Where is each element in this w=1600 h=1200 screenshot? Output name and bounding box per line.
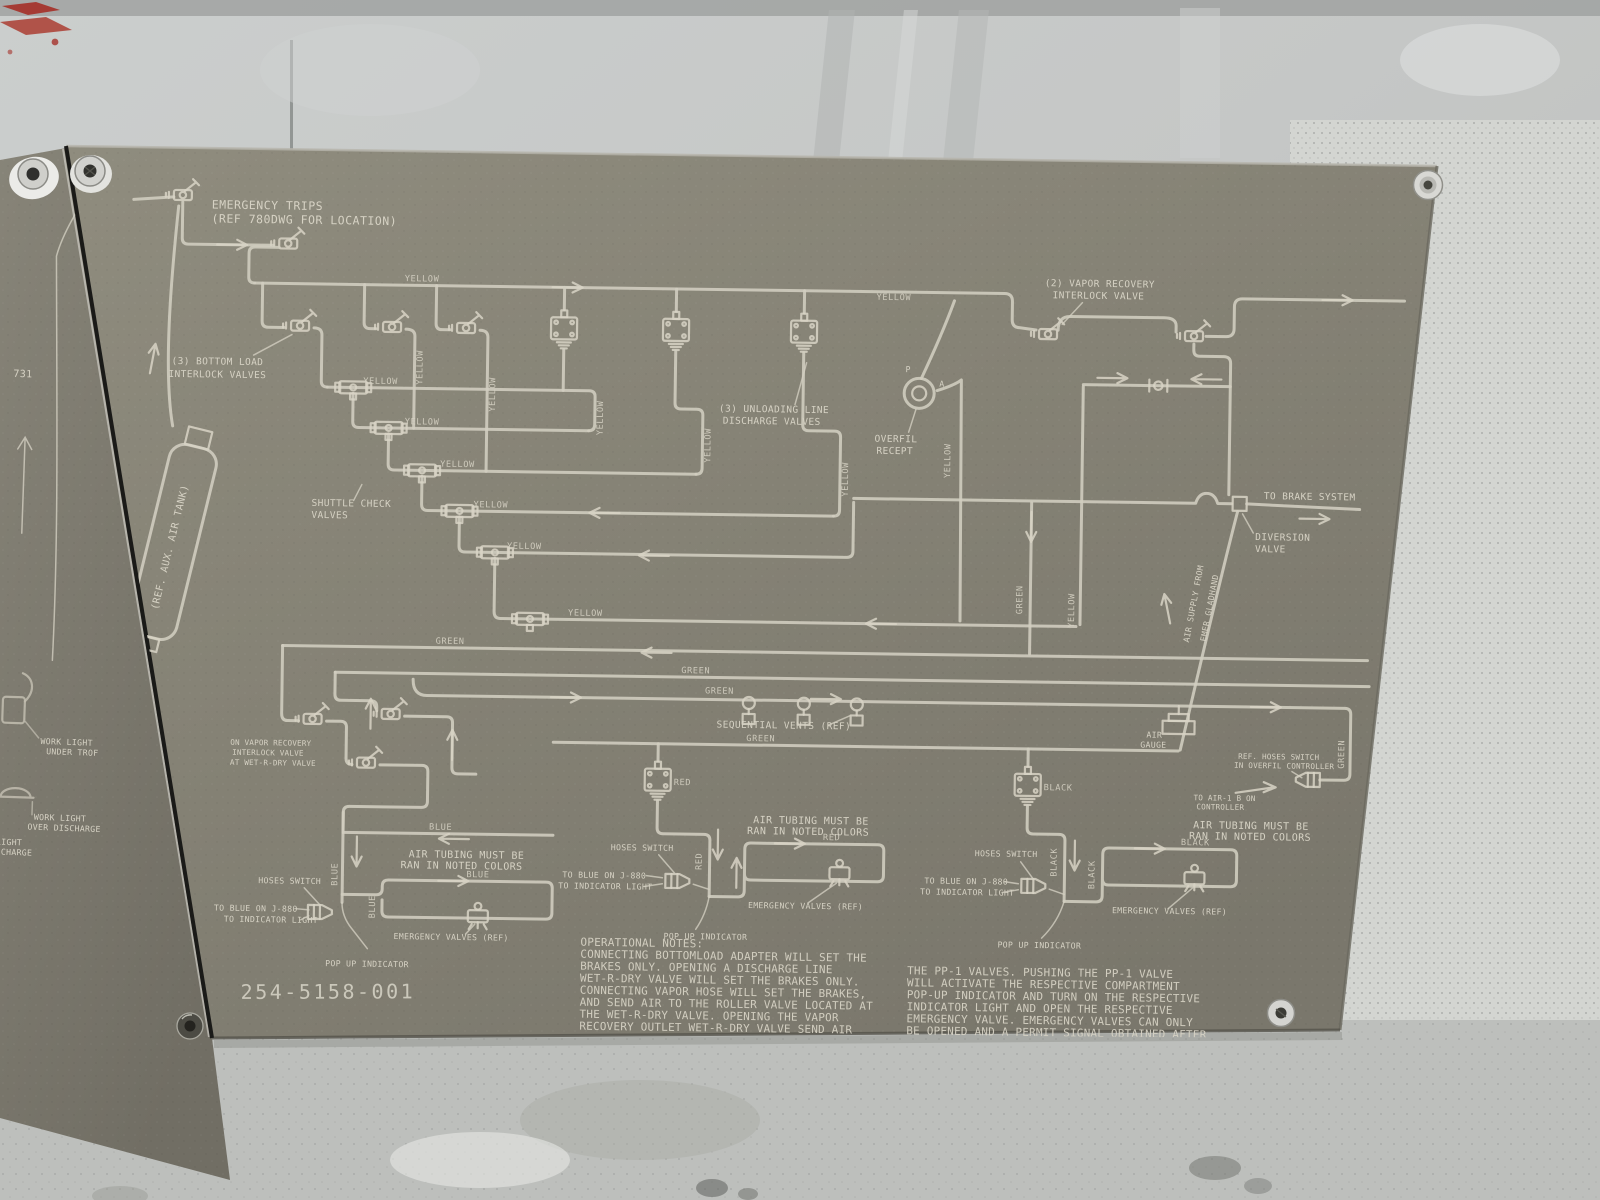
color-label: RED (695, 853, 705, 870)
color-label: GREEN (1337, 740, 1347, 769)
cut-discharge-label: SCHARGE (0, 846, 32, 857)
color-label: YELLOW (596, 400, 606, 435)
color-label: YELLOW (415, 350, 425, 385)
cut-light-label: LIGHT (0, 836, 22, 847)
unloading-label: (3) UNLOADING LINE (719, 404, 829, 417)
color-label: BLUE (429, 823, 452, 833)
air-tubing-label2: RAN IN NOTED COLORS (400, 860, 522, 873)
color-label: YELLOW (363, 377, 398, 387)
color-label: YELLOW (405, 274, 440, 284)
blue-vertical (342, 812, 343, 902)
to-brake-label: TO BRAKE SYSTEM (1264, 491, 1356, 503)
color-label: RED (674, 778, 691, 788)
color-label: YELLOW (1067, 593, 1077, 628)
color-label: GREEN (681, 666, 710, 676)
color-label: BLUE (368, 895, 378, 918)
emergency-trips-label: EMERGENCY TRIPS (212, 197, 324, 213)
to-indicator-label: TO INDICATOR LIGHT (224, 914, 318, 925)
on-vapor-label3: AT WET-R-DRY VALVE (230, 758, 316, 768)
part-number: 254-5158-001 (241, 979, 416, 1004)
color-label: YELLOW (488, 377, 498, 412)
color-label: GREEN (436, 637, 465, 647)
pop-up-label: POP UP INDICATOR (997, 939, 1081, 950)
color-label: BLUE (330, 863, 340, 886)
diversion-label2: VALVE (1255, 544, 1286, 555)
screw-top-left-inner (70, 155, 112, 193)
color-label: YELLOW (943, 443, 953, 478)
air-gauge-label: AIR (1146, 730, 1162, 740)
overfil-label2: RECEPT (876, 446, 913, 458)
bottom-load-label2: INTERLOCK VALVES (168, 369, 266, 381)
color-label: BLACK (1044, 783, 1073, 793)
on-vapor-label2: INTERLOCK VALVE (232, 748, 304, 758)
to-indicator-label: TO INDICATOR LIGHT (558, 880, 652, 891)
air-tubing-label2: RAN IN NOTED COLORS (747, 826, 869, 839)
air-gauge-label2: GAUGE (1140, 739, 1166, 749)
scene: 731 WORK LIGHT UNDER TROF WORK LIGHT OVE… (0, 0, 1600, 1200)
check-line (1083, 385, 1230, 387)
hoses-switch-label: HOSES SWITCH (611, 842, 674, 853)
color-label: GREEN (705, 686, 734, 696)
top-edge-shadow (0, 0, 1600, 16)
port-p-label: P (905, 364, 910, 374)
discharge-out-1 (563, 349, 564, 390)
color-label: YELLOW (568, 608, 603, 618)
diversion-label: DIVERSION (1255, 532, 1310, 544)
to-indicator-label: TO INDICATOR LIGHT (920, 886, 1014, 897)
to-air1b-label2: CONTROLLER (1196, 802, 1244, 812)
to-blue-label: TO BLUE ON J-880 (562, 869, 646, 880)
color-label: YELLOW (876, 293, 911, 303)
screw-bottom-left (177, 1013, 203, 1039)
screw-top-right (1414, 171, 1443, 200)
color-label: YELLOW (474, 500, 509, 510)
emergency-trips-label2: (REF 780DWG FOR LOCATION) (211, 211, 397, 228)
color-label: BLACK (1087, 860, 1097, 889)
color-label: YELLOW (841, 462, 851, 497)
color-label: GREEN (746, 734, 775, 744)
vapor-recovery-label: (2) VAPOR RECOVERY (1045, 278, 1155, 291)
vapor-recovery-label2: INTERLOCK VALVE (1052, 290, 1144, 302)
color-label: YELLOW (507, 542, 542, 552)
overfil-label: OVERFIL (874, 434, 917, 446)
unloading-label2: DISCHARGE VALVES (723, 416, 821, 428)
color-label: YELLOW (405, 417, 440, 427)
screw-bottom-right (1268, 1000, 1295, 1027)
port-a-label: A (939, 379, 944, 389)
color-label: YELLOW (440, 460, 475, 470)
adjacent-ref-number: 731 (13, 369, 33, 381)
sequential-vents-label: SEQUENTIAL VENTS (REF) (716, 720, 851, 733)
color-label: GREEN (1015, 585, 1025, 614)
ref-hoses-label2: IN OVERFIL CONTROLLER (1234, 761, 1335, 771)
photo-of-placard: 731 WORK LIGHT UNDER TROF WORK LIGHT OVE… (0, 0, 1600, 1200)
pop-up-label: POP UP INDICATOR (325, 958, 409, 969)
color-label: BLACK (1049, 848, 1059, 877)
emergency-valves-label: EMERGENCY VALVES (REF) (748, 900, 863, 912)
air-tubing-label2: RAN IN NOTED COLORS (1189, 831, 1311, 844)
to-blue-label: TO BLUE ON J-880 (924, 875, 1008, 886)
to-blue-label: TO BLUE ON J-880 (214, 903, 298, 914)
hoses-switch-label: HOSES SWITCH (975, 848, 1038, 859)
color-label: YELLOW (703, 428, 713, 463)
bottom-load-label: (3) BOTTOM LOAD (171, 356, 263, 368)
work-light-under-label2: UNDER TROF (46, 746, 99, 758)
emergency-valves-label: EMERGENCY VALVES (REF) (393, 931, 508, 943)
hoses-switch-label: HOSES SWITCH (258, 875, 321, 886)
shuttle-check-label: SHUTTLE CHECK (312, 498, 392, 510)
on-vapor-label: ON VAPOR RECOVERY (230, 738, 311, 748)
shuttle-check-label2: VALVES (311, 510, 348, 522)
